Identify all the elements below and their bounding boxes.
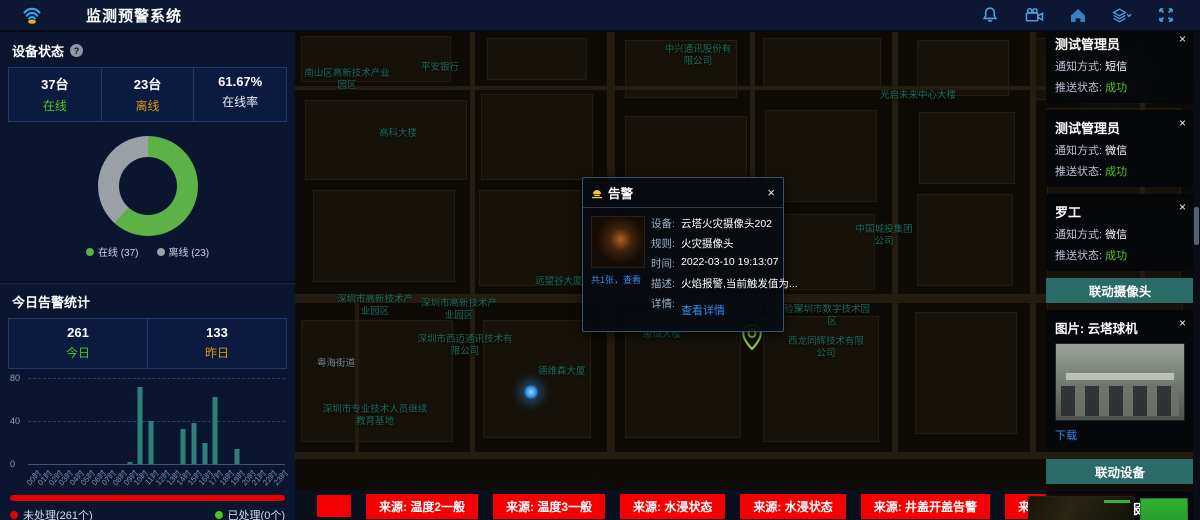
device-status-donut-chart [98, 136, 198, 236]
map-building [313, 190, 455, 282]
field-detail: 详情:查看详情 [651, 296, 775, 318]
close-icon[interactable]: × [1179, 316, 1186, 330]
close-icon[interactable]: × [1179, 32, 1186, 46]
map-building [915, 312, 1017, 434]
map-device-dot-marker[interactable] [523, 384, 539, 400]
stat-offline: 23台 离线 [101, 68, 194, 121]
map-label: 粤海街道 [317, 358, 355, 370]
field-rule: 规则:火灾摄像头 [651, 236, 775, 251]
field-time: 时间:2022-03-10 19:13:07 [651, 256, 775, 271]
today-alarm-stats: 261 今日 133 昨日 [8, 318, 287, 369]
unprocessed-bar [10, 495, 285, 501]
map-label: 德维森大厦 [538, 366, 586, 378]
gridline [28, 378, 285, 379]
bar-plot: 04080 [28, 379, 285, 465]
bar-10时 [138, 387, 143, 464]
fullscreen-icon[interactable] [1156, 5, 1176, 25]
alarm-source-badge[interactable]: 来源: 水浸状态 [740, 494, 845, 519]
stat-today: 261 今日 [9, 319, 147, 368]
bar-11时 [149, 421, 154, 464]
field-description: 描述:火焰报警,当前触发值为... [651, 276, 775, 291]
notification-card: × 测试管理员 通知方式: 短信 推送状态: 成功 [1046, 32, 1194, 103]
map-label: 南山区高新技术产业园区 [303, 68, 391, 93]
alarm-source-badge[interactable]: 来源: 水浸状态 [620, 494, 725, 519]
map-label: 中兴通讯股份有限公司 [661, 44, 735, 69]
today-alarm-bar-chart: 04080 00时01时02时03时04时05时06时07时08时09时10时1… [8, 379, 285, 491]
stat-online: 37台 在线 [9, 68, 101, 121]
help-icon[interactable]: ? [70, 44, 83, 57]
alarm-popup-body: 共1张，查看 设备:云塔火灾摄像头202 规则:火灾摄像头 时间:2022-03… [583, 208, 783, 331]
app-logo-icon [20, 3, 44, 27]
alarm-popup-title: 告警 [608, 183, 762, 202]
bar-x-axis: 00时01时02时03时04时05时06时07时08时09时10时11时12时1… [28, 465, 285, 491]
map-building [487, 38, 587, 80]
home-icon[interactable] [1068, 5, 1088, 25]
linked-device-header: 联动设备 [1046, 459, 1194, 484]
y-tick-label: 80 [10, 373, 20, 383]
close-icon[interactable]: × [1179, 116, 1186, 130]
map-building [479, 190, 591, 286]
map-label: 远望谷大厦 [535, 276, 583, 288]
map-label: 深圳市西迈通讯技术有限公司 [417, 334, 513, 359]
left-stats-panel: 设备状态 ? 37台 在线 23台 离线 61.67% 在线率 [0, 32, 295, 520]
video-preview-thumbnail[interactable] [1028, 496, 1134, 520]
right-notification-panel: × 测试管理员 通知方式: 短信 推送状态: 成功 × 测试管理员 通知方式: … [1046, 32, 1194, 520]
alarm-source-badge[interactable]: 来源: 温度3一般 [493, 494, 605, 519]
map-label: 中国城投集团公司 [851, 224, 917, 249]
bar-15时 [191, 423, 196, 464]
map-label: 深圳市高新技术产业园区 [335, 294, 415, 319]
camera-snapshot-image [1055, 343, 1185, 421]
progress-legend: 未处理(261个) 已处理(0个) [10, 507, 285, 520]
video-camera-icon[interactable] [1024, 5, 1044, 25]
stat-yesterday: 133 昨日 [147, 319, 286, 368]
gridline [28, 421, 285, 422]
video-preview-thumbnail-green[interactable] [1140, 498, 1188, 520]
y-tick-label: 40 [10, 416, 20, 426]
view-detail-link[interactable]: 查看详情 [681, 302, 725, 318]
y-tick-label: 0 [10, 459, 15, 469]
snapshot-view-link[interactable]: 共1张，查看 [591, 273, 643, 286]
notification-card: × 罗工 通知方式: 微信 推送状态: 成功 [1046, 194, 1194, 271]
today-alarm-section: 今日告警统计 261 今日 133 昨日 04080 00时01时02时03时0… [0, 283, 295, 520]
map-label: 高科大楼 [379, 128, 417, 140]
bar-16时 [202, 443, 207, 465]
alarm-popup: 告警 × 共1张，查看 设备:云塔火灾摄像头202 规则:火灾摄像头 时间:20… [582, 177, 784, 332]
scrollbar-thumb[interactable] [1194, 207, 1199, 245]
map-label: 深圳市数字技术园区 [793, 304, 871, 329]
map-label: 平安银行 [421, 62, 459, 74]
alarm-popup-header: 告警 × [583, 178, 783, 208]
device-status-title: 设备状态 ? [0, 32, 295, 67]
processed-dot [215, 511, 223, 519]
legend-online-dot [86, 248, 94, 256]
alarm-source-badge[interactable]: 来源: 井盖开盖告警 [861, 494, 990, 519]
app-header: 监测预警系统 [0, 0, 1200, 32]
map-label: 深圳市高新技术产业园区 [419, 298, 499, 323]
map[interactable]: 南山区高新技术产业园区平安银行中兴通讯股份有限公司光启未来中心大楼高科大楼中国城… [295, 32, 1200, 520]
device-status-section: 设备状态 ? 37台 在线 23台 离线 61.67% 在线率 [0, 32, 295, 259]
bar-09时 [127, 462, 132, 464]
linked-camera-card: × 图片: 云塔球机 下载 [1046, 310, 1194, 452]
download-link[interactable]: 下载 [1055, 427, 1077, 443]
header-toolbar [980, 5, 1186, 25]
linked-camera-header: 联动摄像头 [1046, 278, 1194, 303]
alarm-lamp-icon [591, 187, 603, 199]
right-panel-scrollbar[interactable] [1193, 32, 1200, 520]
device-status-stats: 37台 在线 23台 离线 61.67% 在线率 [8, 67, 287, 122]
map-layers-icon[interactable] [1112, 5, 1132, 25]
map-building [919, 112, 1015, 184]
close-icon[interactable]: × [1179, 200, 1186, 214]
alarm-source-badge[interactable]: 来源: 温度2一般 [366, 494, 478, 519]
donut-legend: 在线 (37) 离线 (23) [0, 244, 295, 259]
bar-17时 [213, 397, 218, 464]
field-device: 设备:云塔火灾摄像头202 [651, 216, 775, 231]
popup-close-icon[interactable]: × [767, 186, 775, 199]
bar-19时 [234, 449, 239, 464]
map-label: 深圳市专业技术人员继续教育基地 [319, 404, 431, 429]
alarm-progress-bar [10, 495, 285, 501]
map-building [763, 38, 881, 90]
unprocessed-dot [10, 511, 18, 519]
notification-card: × 测试管理员 通知方式: 微信 推送状态: 成功 [1046, 110, 1194, 187]
bar-14时 [181, 429, 186, 464]
alarm-snapshot-image[interactable] [591, 216, 645, 268]
page-title: 监测预警系统 [86, 5, 182, 26]
map-label: 光启未来中心大楼 [880, 90, 956, 102]
legend-offline-dot [157, 248, 165, 256]
map-building [917, 194, 1013, 286]
notification-bell-icon[interactable] [980, 5, 1000, 25]
map-building [481, 94, 593, 180]
app-root: 监测预警系统 [0, 0, 1200, 520]
map-label: 西龙同辉技术有限公司 [785, 336, 867, 361]
map-building [763, 316, 879, 442]
alarm-source-badge-partial[interactable] [317, 495, 351, 517]
stat-online-rate: 61.67% 在线率 [193, 68, 286, 121]
today-alarm-title: 今日告警统计 [0, 283, 295, 318]
map-road [470, 32, 475, 452]
